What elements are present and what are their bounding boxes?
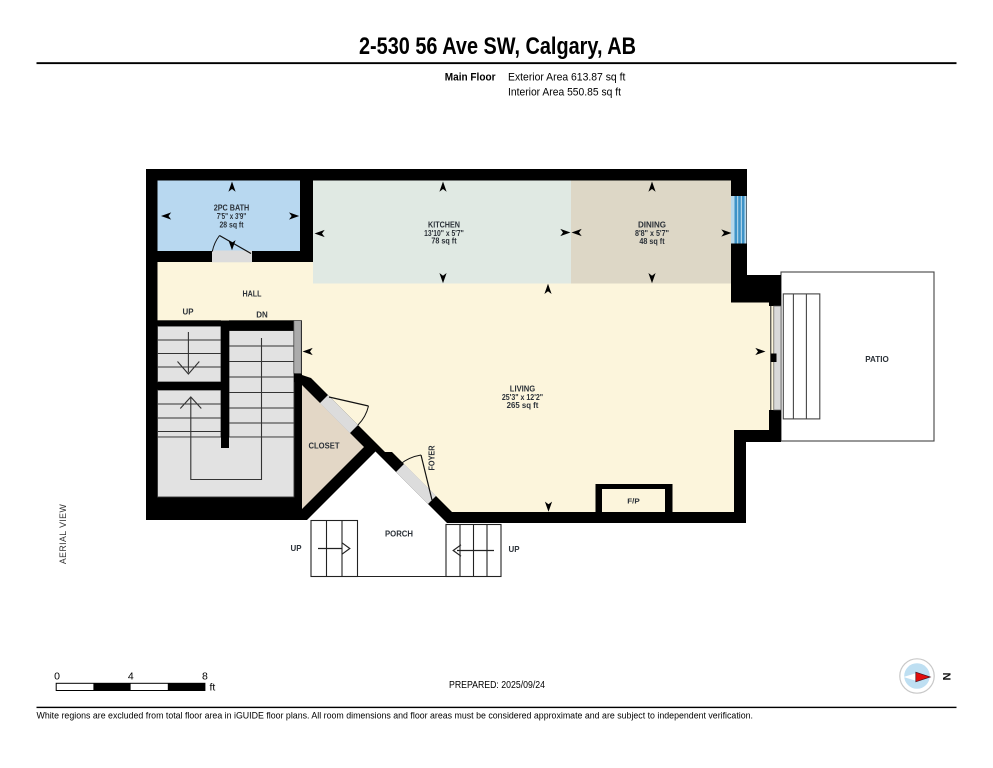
svg-text:UP: UP	[183, 308, 195, 317]
svg-text:UP: UP	[291, 544, 303, 553]
svg-text:PREPARED: 2025/09/24: PREPARED: 2025/09/24	[449, 680, 545, 691]
svg-text:48 sq ft: 48 sq ft	[639, 237, 664, 246]
svg-text:F/P: F/P	[627, 497, 640, 506]
svg-text:White regions are excluded fro: White regions are excluded from total fl…	[37, 710, 754, 720]
svg-text:DN: DN	[256, 311, 268, 320]
svg-text:4: 4	[128, 671, 134, 683]
svg-text:HALL: HALL	[243, 290, 262, 299]
svg-text:PORCH: PORCH	[385, 530, 413, 539]
svg-text:2-530 56 Ave SW, Calgary, AB: 2-530 56 Ave SW, Calgary, AB	[359, 33, 636, 60]
svg-text:ft: ft	[210, 682, 216, 694]
svg-text:265 sq ft: 265 sq ft	[507, 401, 539, 410]
svg-text:CLOSET: CLOSET	[309, 442, 340, 451]
svg-text:PATIO: PATIO	[865, 355, 889, 364]
svg-text:8: 8	[202, 671, 208, 683]
svg-text:0: 0	[54, 671, 60, 683]
svg-text:FOYER: FOYER	[428, 445, 437, 470]
svg-text:Interior Area 550.85 sq ft: Interior Area 550.85 sq ft	[508, 86, 621, 98]
svg-text:N: N	[940, 673, 952, 681]
svg-text:Exterior Area 613.87 sq ft: Exterior Area 613.87 sq ft	[508, 72, 625, 84]
svg-text:AERIAL VIEW: AERIAL VIEW	[58, 504, 68, 565]
svg-text:78 sq ft: 78 sq ft	[431, 237, 456, 246]
svg-text:28 sq ft: 28 sq ft	[220, 220, 244, 229]
svg-text:UP: UP	[509, 545, 521, 554]
svg-text:Main Floor: Main Floor	[445, 72, 496, 84]
